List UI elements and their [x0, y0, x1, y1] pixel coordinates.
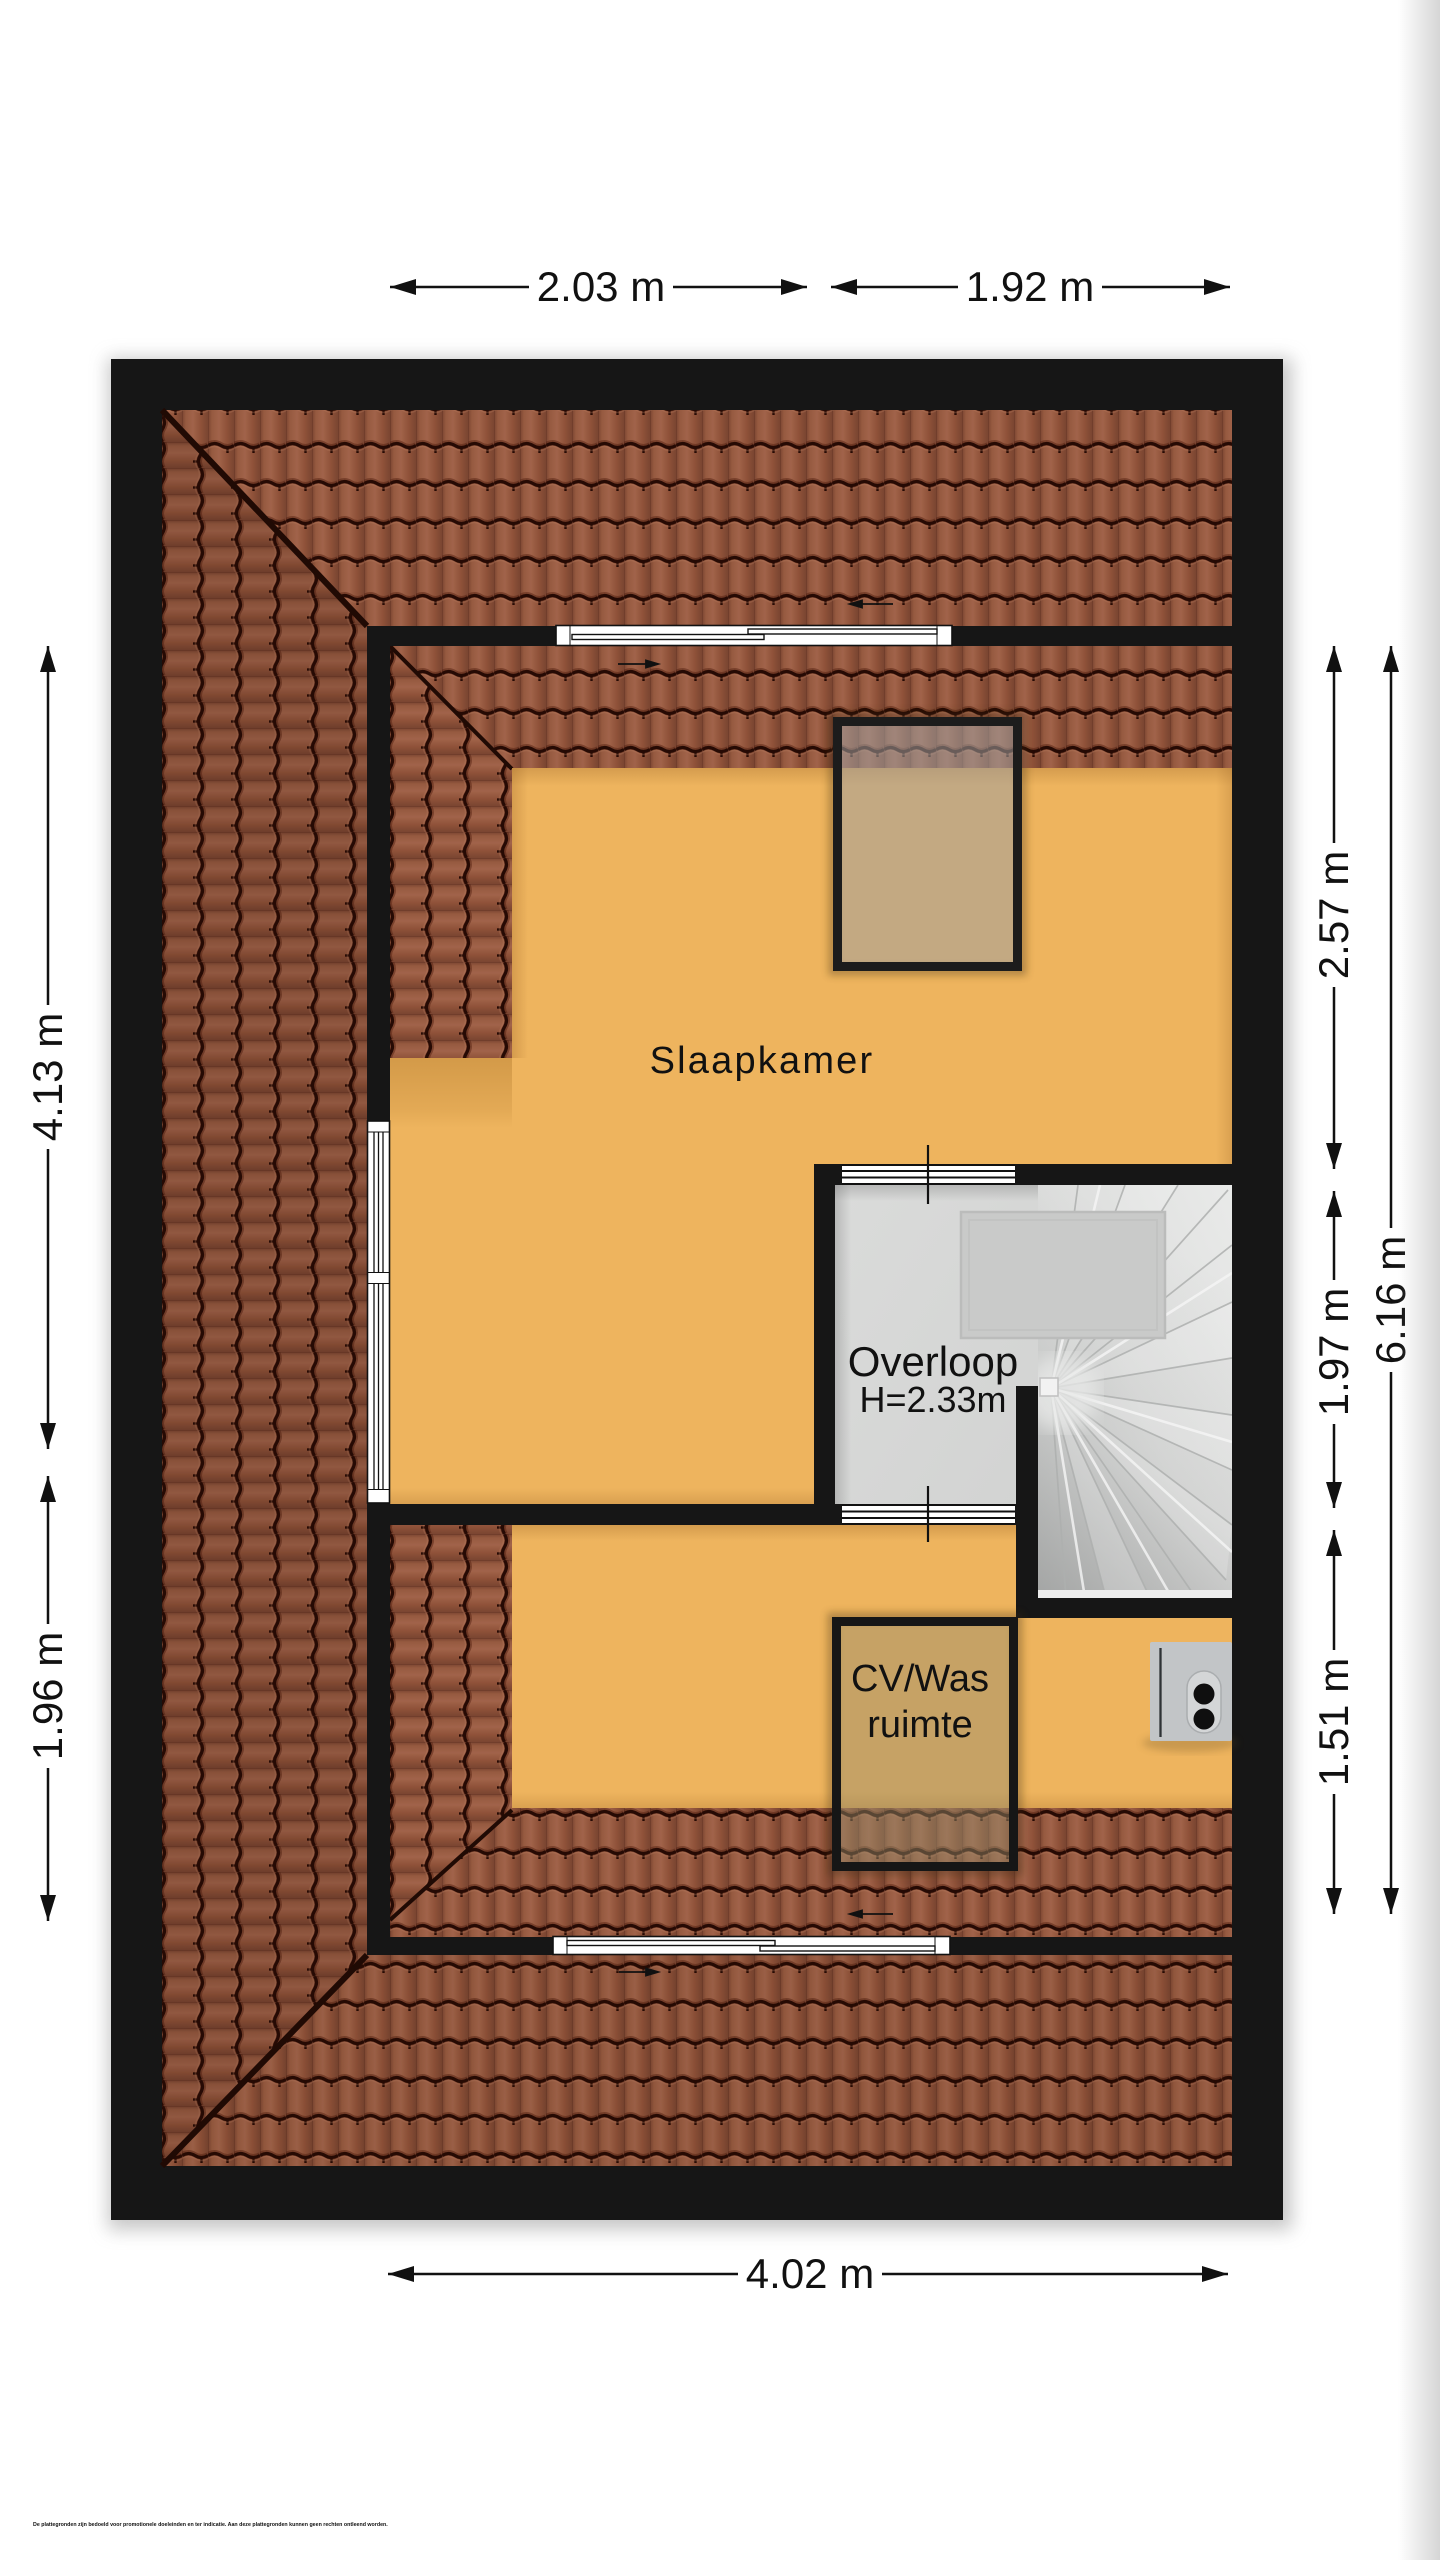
svg-text:1.96 m: 1.96 m	[24, 1632, 71, 1760]
svg-text:Overloop: Overloop	[848, 1338, 1018, 1385]
svg-text:H=2.33m: H=2.33m	[859, 1379, 1006, 1420]
svg-text:1.97 m: 1.97 m	[1310, 1288, 1357, 1416]
svg-text:1.51 m: 1.51 m	[1310, 1658, 1357, 1786]
svg-text:4.02 m: 4.02 m	[746, 2250, 874, 2297]
svg-text:De plattegronden zijn bedoeld: De plattegronden zijn bedoeld voor promo…	[33, 2522, 388, 2528]
svg-text:2.03 m: 2.03 m	[537, 263, 665, 310]
svg-text:4.13 m: 4.13 m	[24, 1013, 71, 1141]
svg-text:CV/Was: CV/Was	[851, 1658, 989, 1700]
svg-text:Slaapkamer: Slaapkamer	[650, 1040, 875, 1082]
svg-text:ruimte: ruimte	[867, 1704, 973, 1746]
svg-text:2.57 m: 2.57 m	[1310, 851, 1357, 979]
svg-text:1.92 m: 1.92 m	[966, 263, 1094, 310]
